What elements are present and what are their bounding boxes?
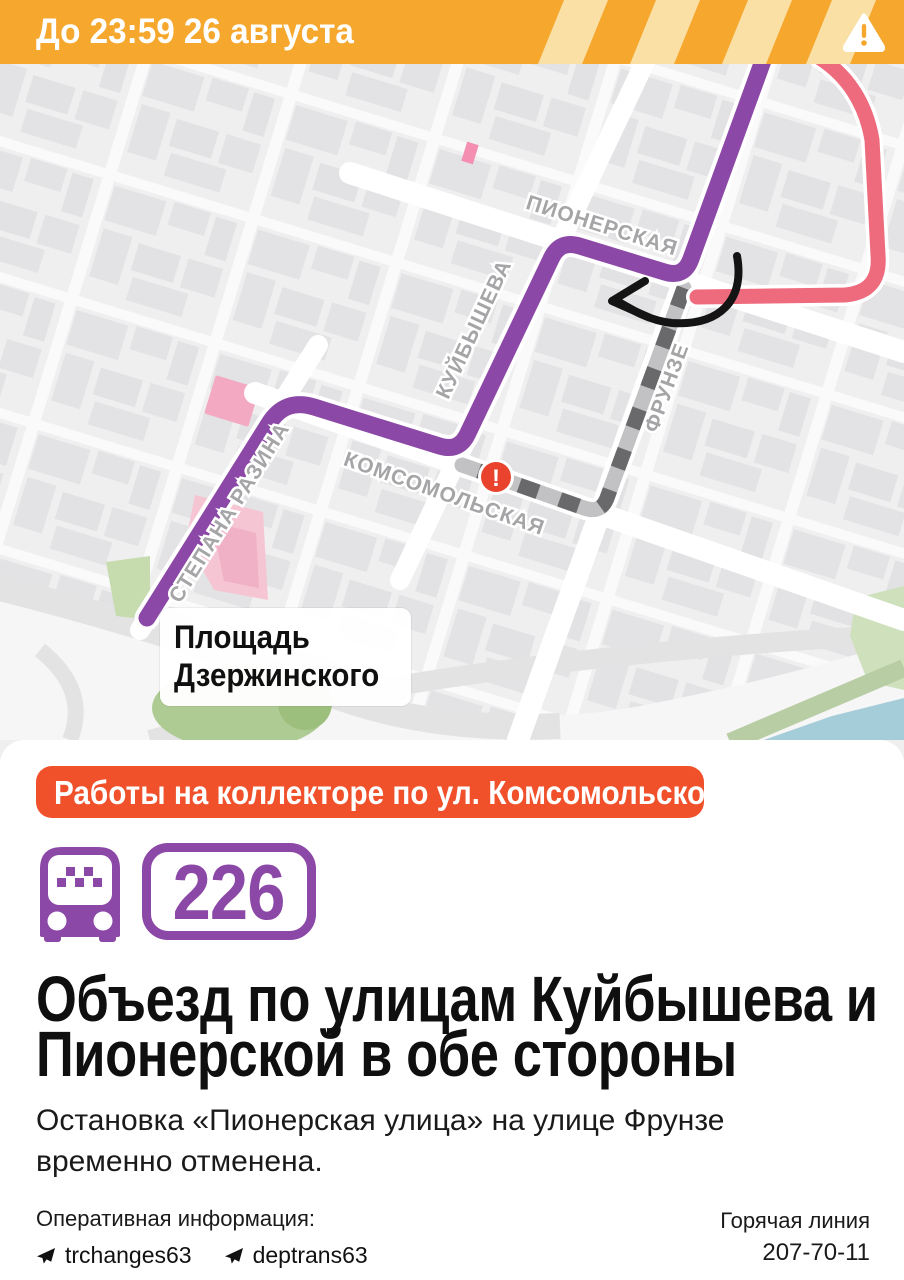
closure-marker-icon: ! (478, 459, 514, 495)
telegram-channel-deptrans63[interactable]: deptrans63 (224, 1242, 368, 1269)
place-label-line2: Дзержинского (174, 656, 379, 694)
svg-text:!: ! (492, 465, 500, 492)
telegram-plane-icon (36, 1247, 56, 1265)
hotline-block: Горячая линия 207-70-11 (720, 1206, 870, 1269)
hotline-label: Горячая линия (720, 1206, 870, 1236)
channel-name: trchanges63 (65, 1242, 192, 1269)
route-row: 226 (36, 843, 316, 943)
footer-info-label: Оперативная информация: (36, 1206, 368, 1232)
footer-info-block: Оперативная информация: trchanges63 dept… (36, 1206, 368, 1269)
telegram-channels: trchanges63 deptrans63 (36, 1242, 368, 1269)
alert-card: Работы на коллекторе по ул. Комсомольско… (0, 740, 904, 1280)
deadline-banner: До 23:59 26 августа (0, 0, 904, 64)
card-body-line1: Остановка «Пионерская улица» на улице Фр… (36, 1100, 724, 1141)
card-body: Остановка «Пионерская улица» на улице Фр… (36, 1100, 724, 1182)
deadline-text: До 23:59 26 августа (36, 0, 354, 64)
telegram-channel-trchanges63[interactable]: trchanges63 (36, 1242, 192, 1269)
card-title: Объезд по улицам Куйбышева и Пионерской … (36, 972, 878, 1082)
place-label-line1: Площадь (174, 618, 379, 656)
telegram-plane-icon (224, 1247, 244, 1265)
hotline-number[interactable]: 207-70-11 (720, 1236, 870, 1269)
transit-alert-screen: ПИОНЕРСКАЯ КУЙБЫШЕВА ФРУНЗЕ КОМСОМОЛЬСКА… (0, 0, 904, 1280)
route-number: 226 (173, 853, 285, 931)
channel-name: deptrans63 (253, 1242, 368, 1269)
place-label-ploshchad-dzerzhinskogo: Площадь Дзержинского (160, 608, 411, 706)
works-badge-text: Работы на коллекторе по ул. Комсомольско… (54, 766, 723, 818)
card-title-line2: Пионерской в обе стороны (36, 1027, 878, 1082)
route-number-badge: 226 (142, 843, 316, 940)
works-badge: Работы на коллекторе по ул. Комсомольско… (36, 766, 704, 818)
warning-triangle-icon (842, 12, 886, 52)
card-body-line2: временно отменена. (36, 1141, 724, 1182)
shuttle-bus-icon (36, 843, 124, 943)
city-map[interactable]: ПИОНЕРСКАЯ КУЙБЫШЕВА ФРУНЗЕ КОМСОМОЛЬСКА… (0, 64, 904, 740)
